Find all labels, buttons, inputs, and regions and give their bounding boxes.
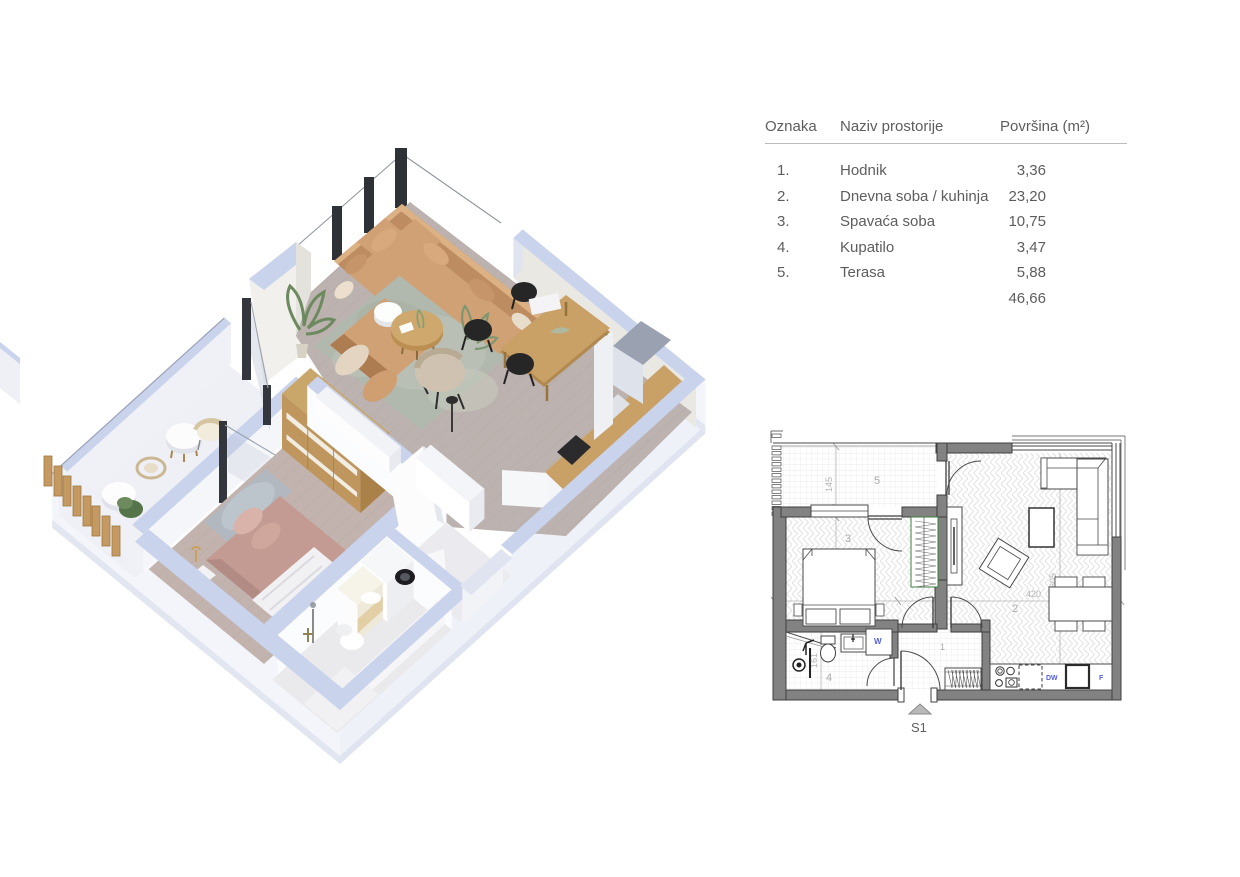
svg-text:5: 5 (874, 475, 880, 487)
svg-text:2: 2 (1012, 603, 1018, 615)
svg-text:145: 145 (824, 477, 834, 492)
svg-text:F: F (1099, 675, 1104, 682)
svg-text:4: 4 (826, 672, 832, 684)
svg-text:3: 3 (845, 533, 851, 545)
svg-text:420: 420 (1026, 589, 1041, 599)
svg-text:1: 1 (940, 642, 945, 652)
svg-text:DW: DW (1046, 675, 1058, 682)
svg-text:S1: S1 (911, 720, 927, 735)
svg-text:W: W (874, 637, 882, 646)
